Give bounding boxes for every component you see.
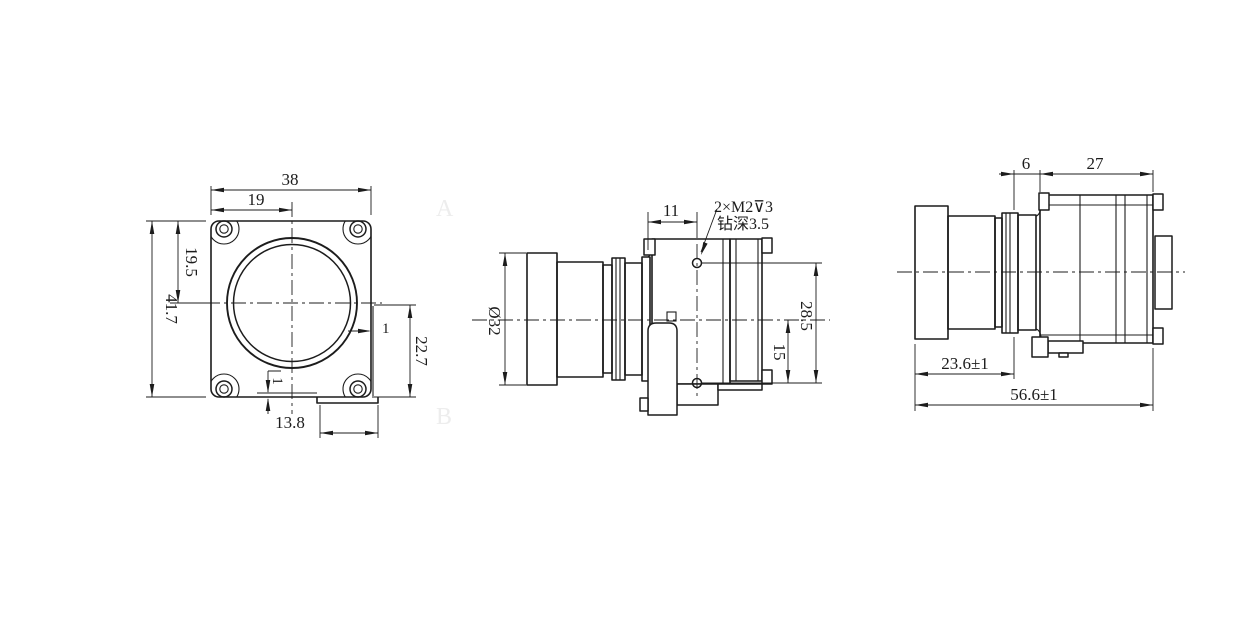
dim-rear-body-length: 27 (1087, 154, 1105, 173)
rear-connector (1155, 236, 1172, 309)
front-view: 38 19 41.7 19.5 22.7 1 1 13.8 (146, 170, 431, 438)
zone-marker-a: A (436, 196, 454, 222)
dim-front-step-height: 22.7 (412, 336, 431, 366)
camera-body-outline (211, 221, 371, 397)
dim-front-height: 41.7 (162, 294, 181, 324)
rear-side-view: 6 27 23.6±1 56.6±1 (897, 154, 1185, 411)
dim-front-height-half: 19.5 (182, 247, 201, 277)
dim-side-hole-to-center: 15 (770, 344, 789, 361)
dim-side-hole-offset: 11 (663, 201, 679, 220)
dim-side-hole-span: 28.5 (797, 301, 816, 331)
dim-front-step-bottom: 1 (269, 377, 285, 385)
dim-rear-overall-length: 56.6±1 (1010, 385, 1058, 404)
dim-front-width: 38 (282, 170, 299, 189)
camera-body-side (640, 238, 772, 415)
bottom-mount-block (648, 323, 677, 415)
dim-rear-lens-length: 23.6±1 (941, 354, 989, 373)
zone-marker-b: B (436, 404, 452, 430)
engineering-drawing-canvas: A B 38 19 (0, 0, 1260, 630)
note-drill-depth: 钻深3.5 (717, 215, 769, 233)
dim-front-step-right: 1 (382, 321, 390, 337)
camera-body-rear (1032, 193, 1172, 357)
rear-dimensions: 6 27 23.6±1 56.6±1 (915, 154, 1153, 411)
dim-front-slot-width: 13.8 (275, 413, 305, 432)
engineering-drawing-page: A B 38 19 (0, 0, 1260, 630)
dim-front-width-half: 19 (248, 190, 265, 209)
side-view: Ø32 11 2×M2⊽3 钻深3.5 15 28.5 (472, 199, 830, 415)
corner-screws (216, 221, 366, 397)
lens-barrel (527, 253, 650, 385)
dim-rear-neck: 6 (1022, 154, 1031, 173)
note-thread-spec: 2×M2⊽3 (714, 199, 773, 216)
dim-side-lens-diameter: Ø32 (485, 306, 504, 335)
bottom-tab (317, 397, 378, 403)
lens-barrel-rear (915, 206, 1041, 339)
